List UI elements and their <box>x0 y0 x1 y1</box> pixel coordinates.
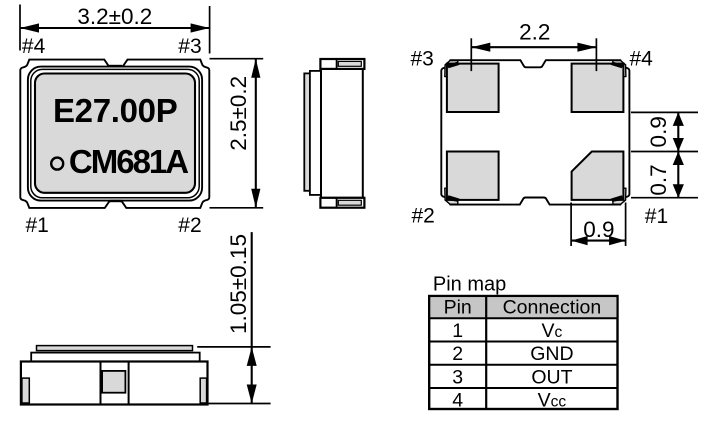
svg-text:2.2: 2.2 <box>519 19 550 44</box>
svg-text:GND: GND <box>530 343 573 365</box>
svg-text:3.2±0.2: 3.2±0.2 <box>77 4 152 29</box>
svg-text:CM681A: CM681A <box>69 143 188 180</box>
svg-text:0.9: 0.9 <box>583 217 614 242</box>
svg-text:#3: #3 <box>178 35 201 58</box>
svg-text:Pin: Pin <box>444 296 472 318</box>
svg-text:4: 4 <box>452 390 463 412</box>
svg-text:0.9: 0.9 <box>646 116 671 147</box>
svg-text:0.7: 0.7 <box>646 164 671 195</box>
svg-text:2: 2 <box>452 343 463 365</box>
svg-text:#4: #4 <box>630 48 654 71</box>
svg-text:#4: #4 <box>22 35 46 58</box>
svg-text:E27.00P: E27.00P <box>53 92 178 129</box>
svg-text:#1: #1 <box>645 205 668 228</box>
svg-text:3: 3 <box>452 366 463 388</box>
svg-text:#2: #2 <box>178 214 201 237</box>
svg-text:Vc: Vc <box>542 320 563 342</box>
svg-text:Pin map: Pin map <box>433 273 506 295</box>
svg-text:Vcc: Vcc <box>538 390 567 412</box>
svg-text:1: 1 <box>452 320 463 342</box>
svg-text:1.05±0.15: 1.05±0.15 <box>226 234 251 334</box>
svg-text:#1: #1 <box>26 214 49 237</box>
svg-text:#2: #2 <box>412 204 435 227</box>
svg-text:Connection: Connection <box>503 296 602 318</box>
svg-text:OUT: OUT <box>531 366 572 388</box>
svg-text:2.5±0.2: 2.5±0.2 <box>226 76 251 151</box>
svg-text:#3: #3 <box>411 48 434 71</box>
